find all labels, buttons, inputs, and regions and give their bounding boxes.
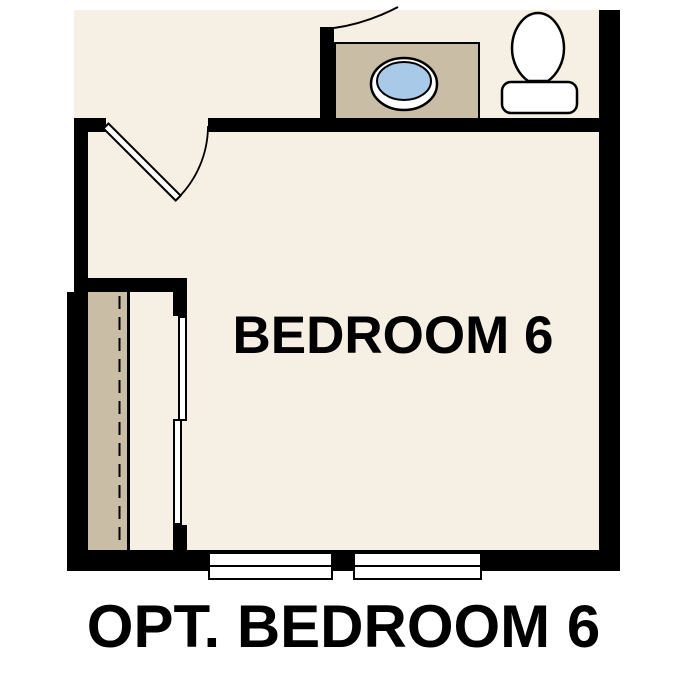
- plan-caption: OPT. BEDROOM 6: [0, 597, 687, 657]
- sink-basin: [377, 62, 431, 100]
- entry-door-swing: [104, 124, 208, 201]
- toilet-tank: [502, 82, 577, 113]
- door-leaf: [104, 124, 181, 201]
- toilet-bowl: [512, 13, 564, 81]
- room-label: BEDROOM 6: [187, 309, 599, 362]
- upper-door-swing-arc: [334, 7, 398, 28]
- sink-fixture: [371, 58, 437, 110]
- door-swing-arc: [177, 126, 208, 199]
- floor-plan: BEDROOM 6 OPT. BEDROOM 6: [0, 0, 687, 687]
- toilet-fixture: [502, 13, 577, 113]
